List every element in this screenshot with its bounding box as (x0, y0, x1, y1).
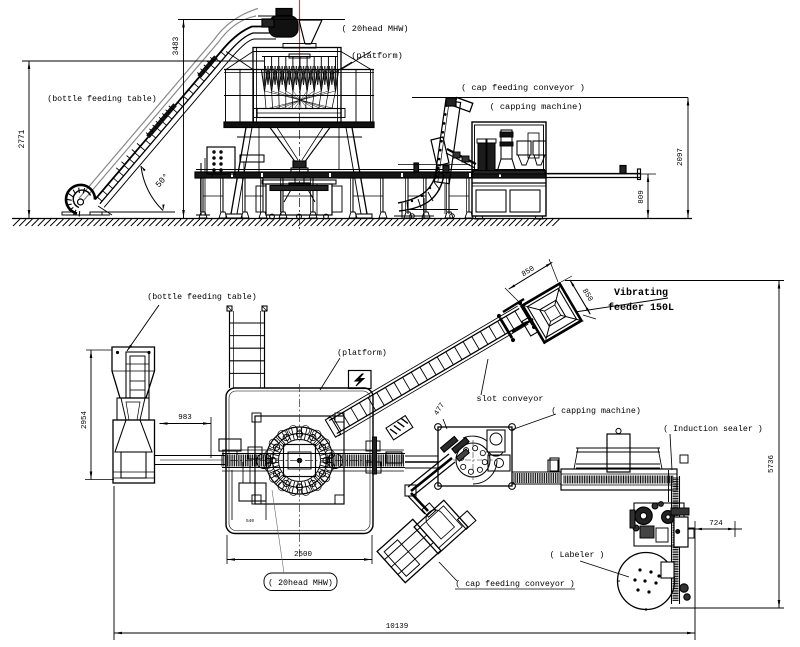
svg-text:(bottle feeding table): (bottle feeding table) (47, 94, 157, 104)
svg-text:809: 809 (638, 190, 646, 204)
svg-text:540: 540 (246, 518, 254, 524)
svg-text:3483: 3483 (173, 36, 181, 55)
svg-text:( Labeler ): ( Labeler ) (550, 550, 605, 560)
svg-text:feeder 150L: feeder 150L (608, 302, 674, 314)
svg-text:( cap feeding conveyor ): ( cap feeding conveyor ) (461, 83, 585, 93)
svg-text:983: 983 (178, 414, 192, 422)
svg-text:( capping machine): ( capping machine) (551, 406, 641, 416)
svg-text:slot conveyor: slot conveyor (476, 394, 543, 404)
svg-text:10139: 10139 (386, 623, 409, 631)
svg-text:( capping machine): ( capping machine) (490, 102, 583, 112)
svg-text:(platform): (platform) (351, 51, 403, 61)
svg-text:724: 724 (709, 520, 723, 528)
svg-text:(bottle feeding table): (bottle feeding table) (147, 292, 257, 302)
svg-text:( cap feeding conveyor ): ( cap feeding conveyor ) (455, 579, 575, 589)
svg-text:2771: 2771 (19, 129, 27, 148)
svg-text:Vibrating: Vibrating (614, 287, 668, 299)
svg-text:2954: 2954 (81, 411, 89, 430)
svg-text:5736: 5736 (768, 455, 776, 474)
svg-text:2097: 2097 (677, 148, 685, 166)
svg-text:( 20head MHW): ( 20head MHW) (268, 578, 333, 588)
svg-text:(platform): (platform) (337, 348, 387, 358)
svg-text:2500: 2500 (294, 551, 313, 559)
svg-text:( 20head MHW): ( 20head MHW) (341, 24, 408, 34)
svg-text:( Induction sealer ): ( Induction sealer ) (663, 424, 763, 434)
